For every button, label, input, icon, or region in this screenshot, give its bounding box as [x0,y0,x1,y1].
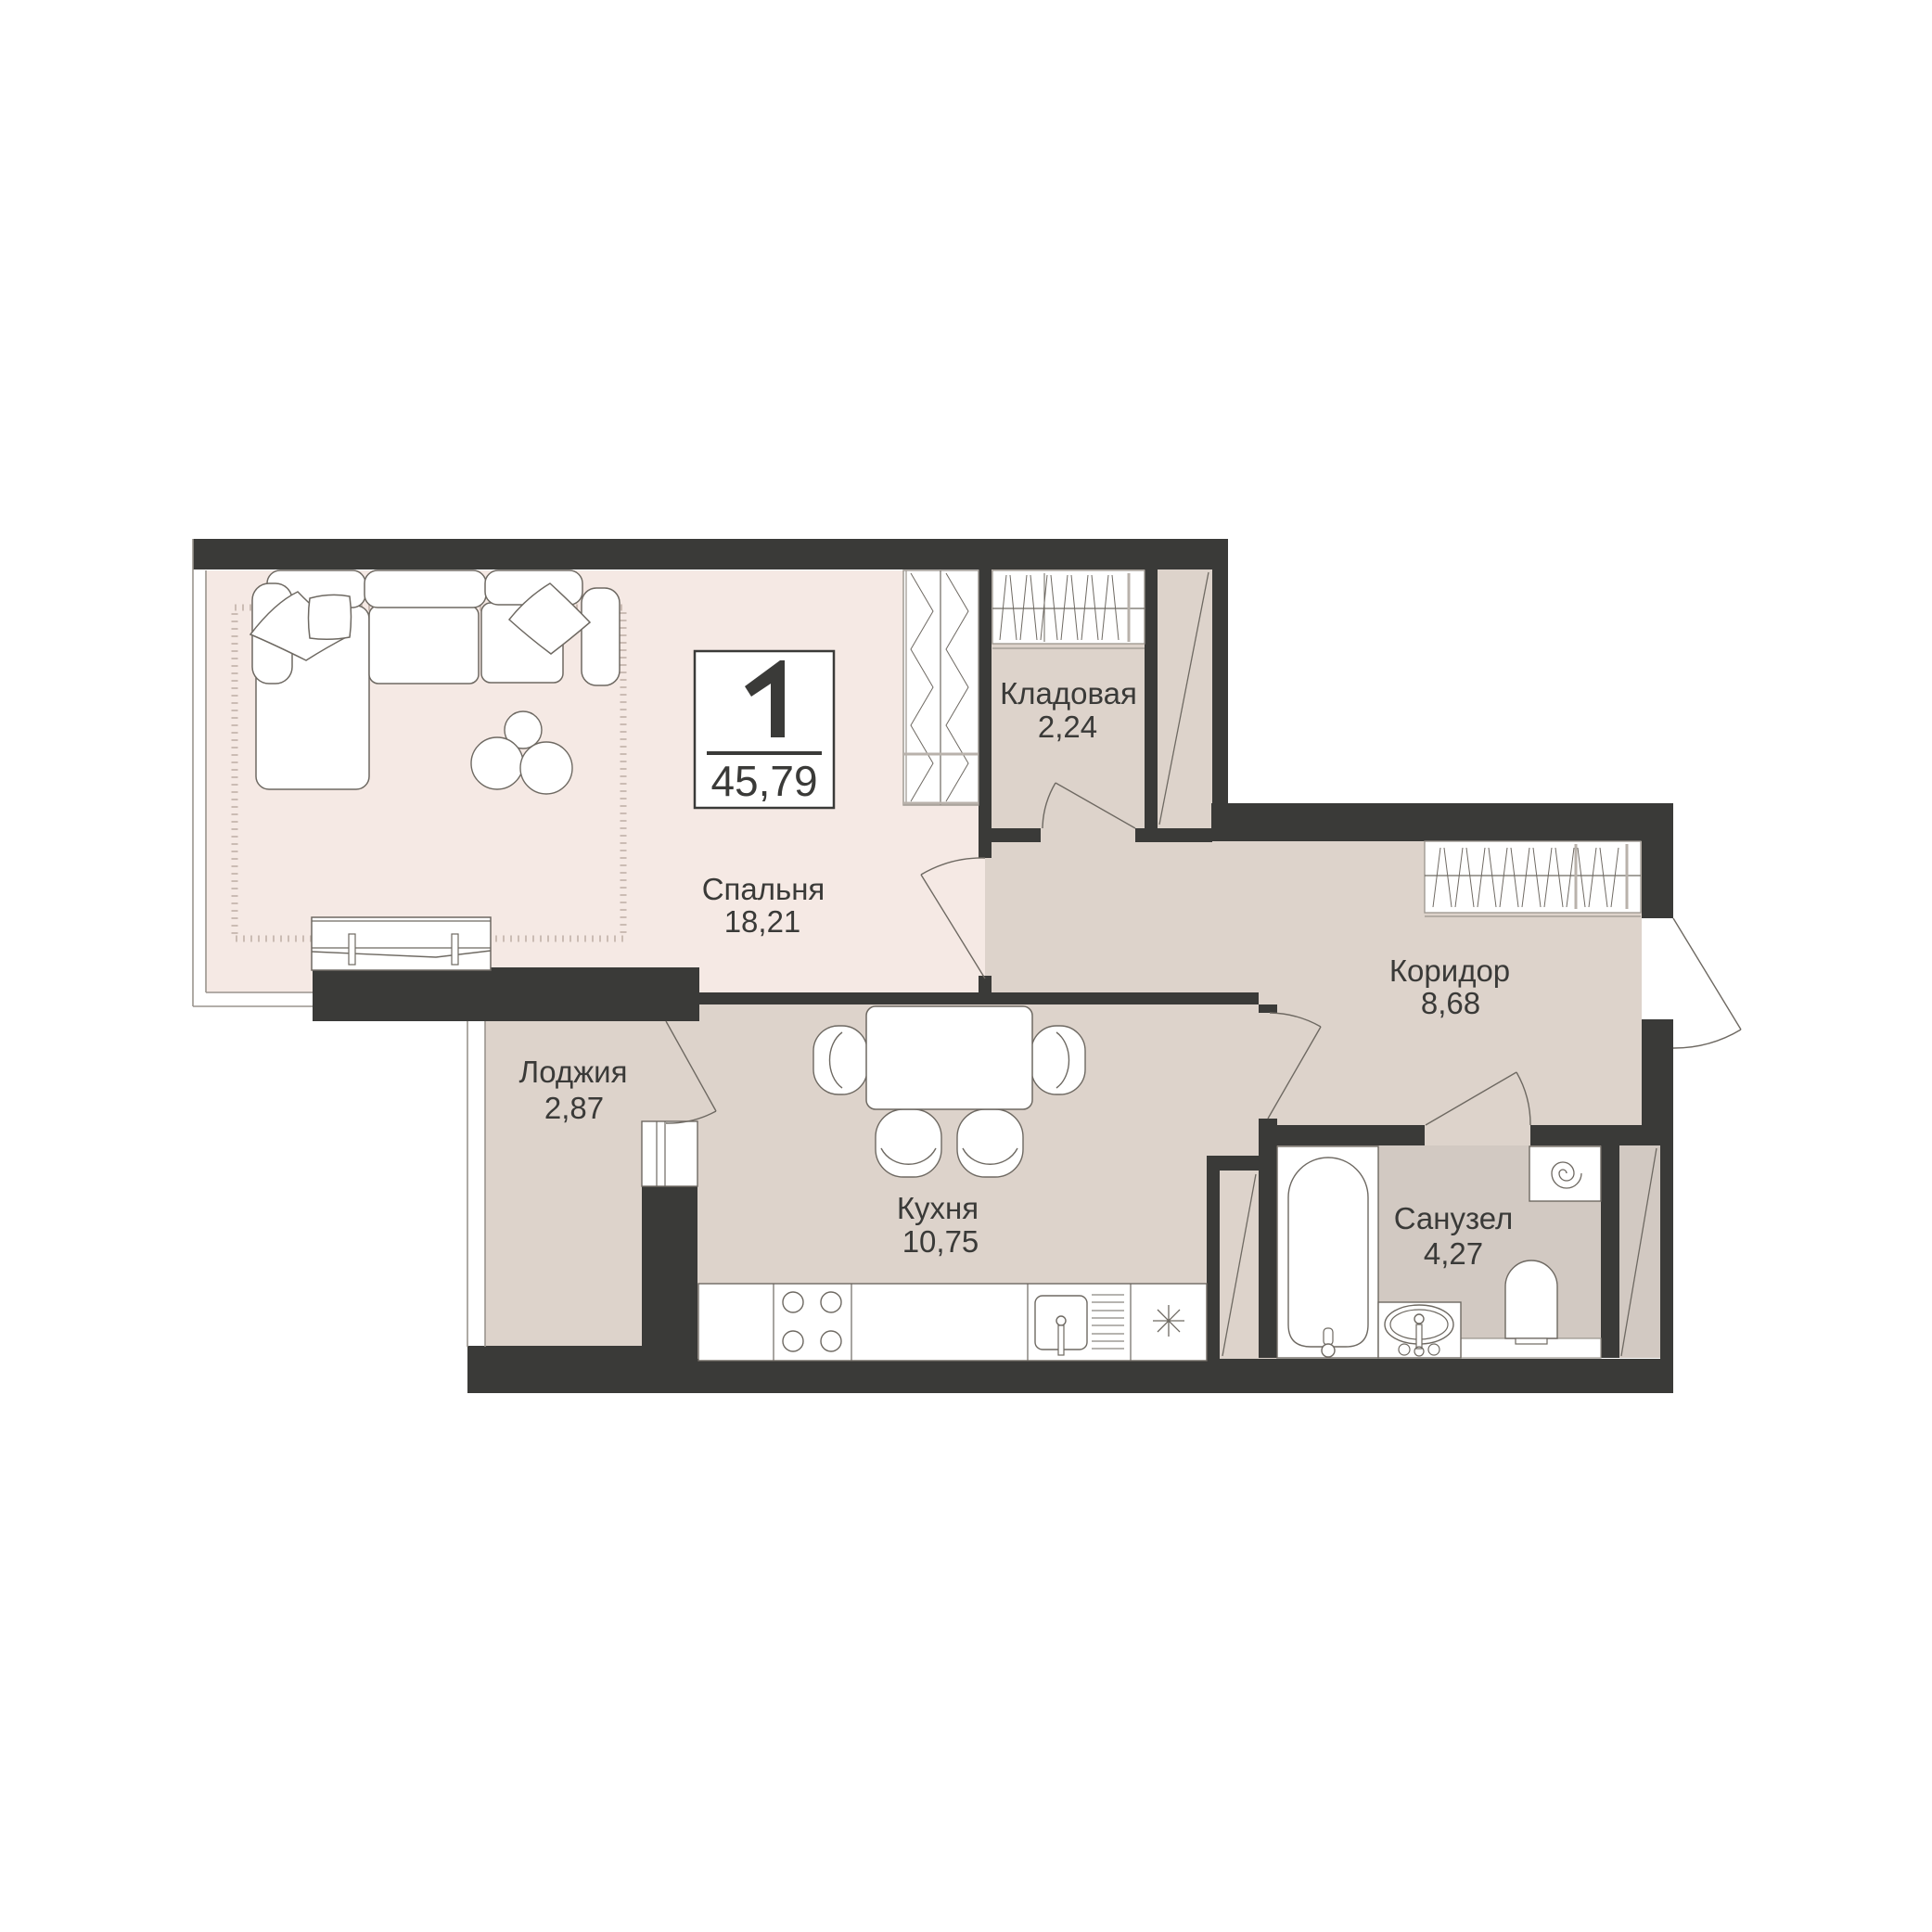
svg-text:18,21: 18,21 [724,904,801,939]
svg-text:10,75: 10,75 [902,1224,979,1259]
svg-text:Кухня: Кухня [897,1191,979,1225]
svg-text:8,68: 8,68 [1421,986,1480,1020]
svg-text:4,27: 4,27 [1424,1236,1483,1271]
svg-text:2,24: 2,24 [1038,710,1097,744]
svg-text:Санузел: Санузел [1394,1201,1514,1235]
svg-text:Спальня: Спальня [702,872,825,906]
svg-text:2,87: 2,87 [544,1091,604,1125]
svg-text:Лоджия: Лоджия [519,1055,628,1089]
svg-text:Коридор: Коридор [1389,953,1510,988]
svg-text:45,79: 45,79 [710,757,817,805]
svg-text:Кладовая: Кладовая [1000,676,1137,710]
